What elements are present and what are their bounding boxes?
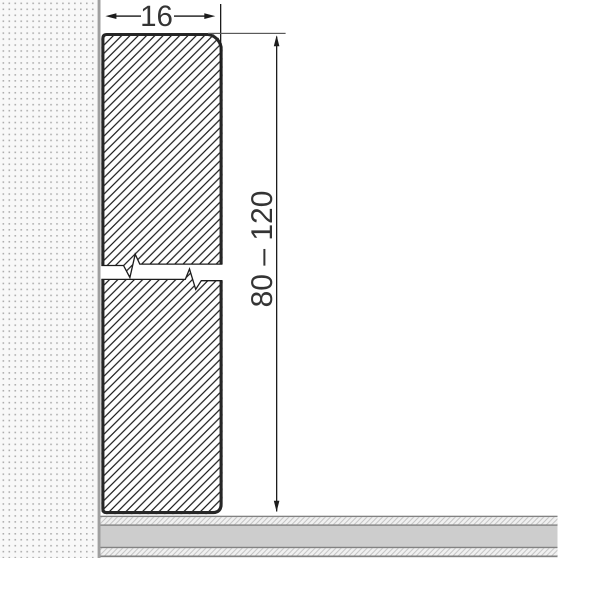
svg-text:16: 16 [140, 0, 173, 33]
svg-text:80 – 120: 80 – 120 [246, 191, 279, 308]
